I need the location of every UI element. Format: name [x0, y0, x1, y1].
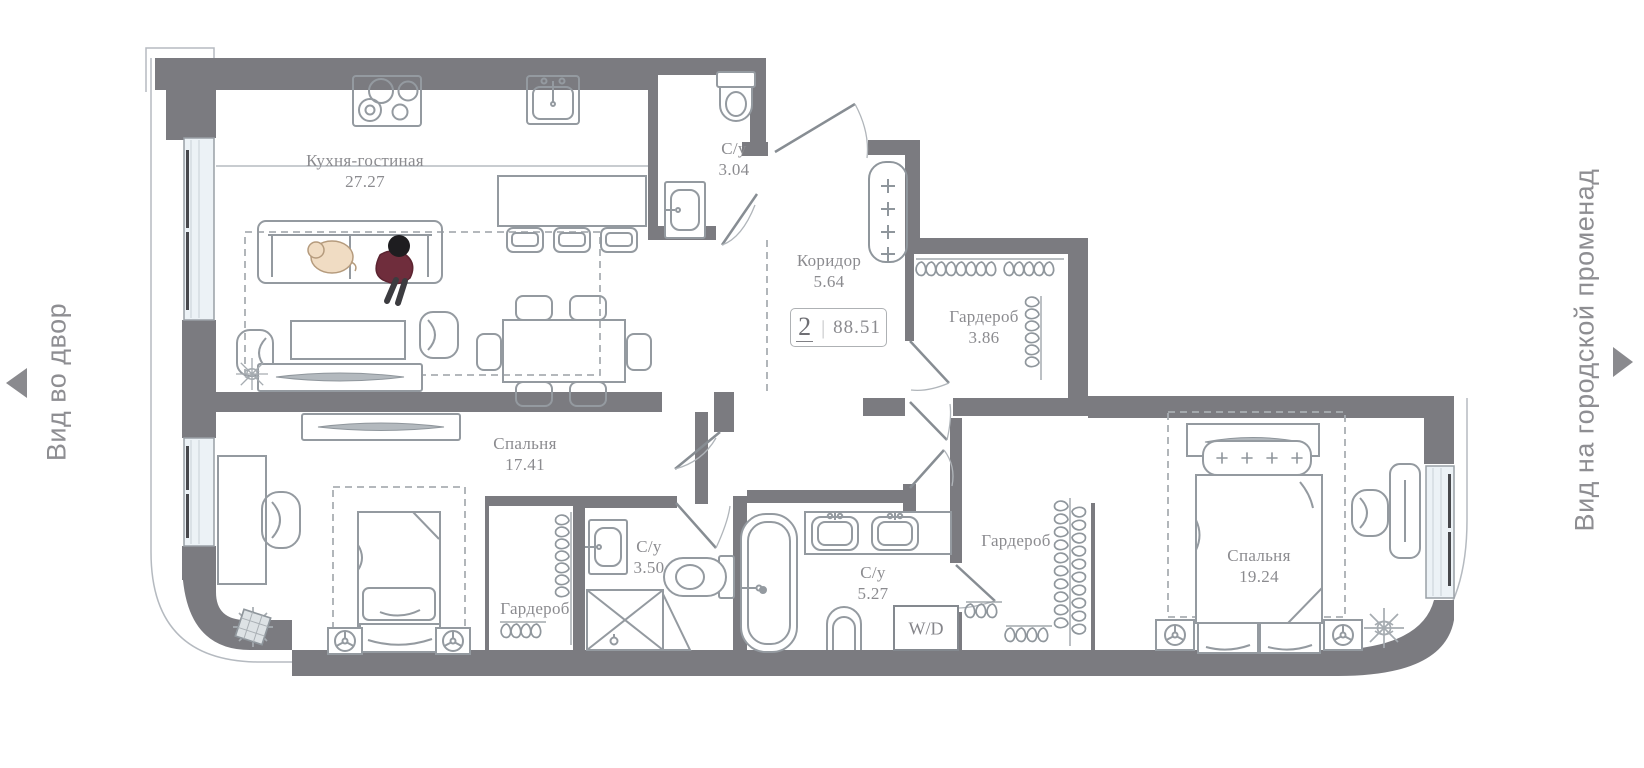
desk — [1390, 464, 1420, 558]
washer-dryer-label: W/D — [909, 619, 944, 640]
room-label-wardrobe-3: Гардероб — [981, 530, 1050, 551]
plant-icon — [233, 607, 273, 647]
plant-icon — [1364, 608, 1404, 648]
room-area: 17.41 — [493, 454, 556, 475]
arrow-left-icon — [6, 368, 27, 398]
room-name: Гардероб — [981, 530, 1050, 551]
floor-plan-page: Кухня-гостиная 27.27 С/у 3.04 Коридор 5.… — [0, 0, 1644, 768]
double-sink-icon — [805, 512, 951, 554]
desk — [218, 456, 266, 584]
rooms-count: 2 — [796, 314, 813, 342]
toilet-icon — [664, 556, 734, 598]
shower-icon — [587, 590, 690, 650]
room-name: С/у — [634, 536, 665, 557]
bathtub-icon — [741, 514, 797, 652]
kitchen-island — [498, 176, 646, 252]
floor-plan-drawing — [0, 0, 1644, 768]
room-label-bedroom-1: Спальня 17.41 — [493, 433, 556, 475]
arrow-right-icon — [1613, 347, 1633, 377]
badge-divider: | — [821, 318, 825, 338]
room-label-bathroom-3: С/у 5.27 — [858, 562, 889, 604]
kitchen-living-furniture — [216, 76, 651, 440]
chair — [262, 492, 300, 548]
bedroom-2-furniture — [1156, 424, 1420, 653]
room-name: Спальня — [1227, 545, 1290, 566]
room-name: Гардероб — [949, 306, 1018, 327]
toilet-icon — [827, 607, 861, 650]
room-name: С/у — [858, 562, 889, 583]
total-area: 88.51 — [833, 318, 881, 337]
room-area: 19.24 — [1227, 566, 1290, 587]
coffee-table — [291, 321, 405, 359]
room-name: Кухня-гостиная — [306, 150, 424, 171]
room-area: 3.04 — [719, 159, 750, 180]
room-label-bedroom-2: Спальня 19.24 — [1227, 545, 1290, 587]
room-label-wardrobe-2: Гардероб — [500, 598, 569, 619]
room-area: 3.86 — [949, 327, 1018, 348]
radiator-icon — [869, 162, 907, 262]
room-name: Коридор — [797, 250, 861, 271]
room-label-bathroom-1: С/у 3.04 — [719, 138, 750, 180]
window-left-bedroom — [184, 438, 214, 546]
toilet-icon — [717, 72, 755, 121]
room-label-wardrobe-1: Гардероб 3.86 — [949, 306, 1018, 348]
bed-single — [358, 512, 440, 652]
armchair — [420, 312, 458, 358]
room-area: 5.27 — [858, 583, 889, 604]
tv-console — [258, 364, 422, 391]
apartment-summary-badge: 2 | 88.51 — [790, 308, 887, 347]
tv-console — [302, 414, 460, 440]
dining-table — [477, 296, 651, 406]
sink-icon — [665, 182, 705, 238]
room-name: Спальня — [493, 433, 556, 454]
room-name: С/у — [719, 138, 750, 159]
chair — [1352, 490, 1388, 536]
view-label-right: Вид на городской променад — [1570, 169, 1601, 532]
sink-icon — [585, 520, 627, 574]
room-area: 3.50 — [634, 557, 665, 578]
room-area: 5.64 — [797, 271, 861, 292]
window-left-kitchen — [184, 138, 214, 320]
view-label-left: Вид во двор — [42, 303, 73, 461]
room-label-kitchen-living: Кухня-гостиная 27.27 — [306, 150, 424, 192]
window-right-bedroom — [1426, 466, 1454, 598]
room-label-corridor: Коридор 5.64 — [797, 250, 861, 292]
room-area: 27.27 — [306, 171, 424, 192]
room-label-bathroom-2: С/у 3.50 — [634, 536, 665, 578]
person-figure — [308, 235, 413, 303]
room-name: Гардероб — [500, 598, 569, 619]
